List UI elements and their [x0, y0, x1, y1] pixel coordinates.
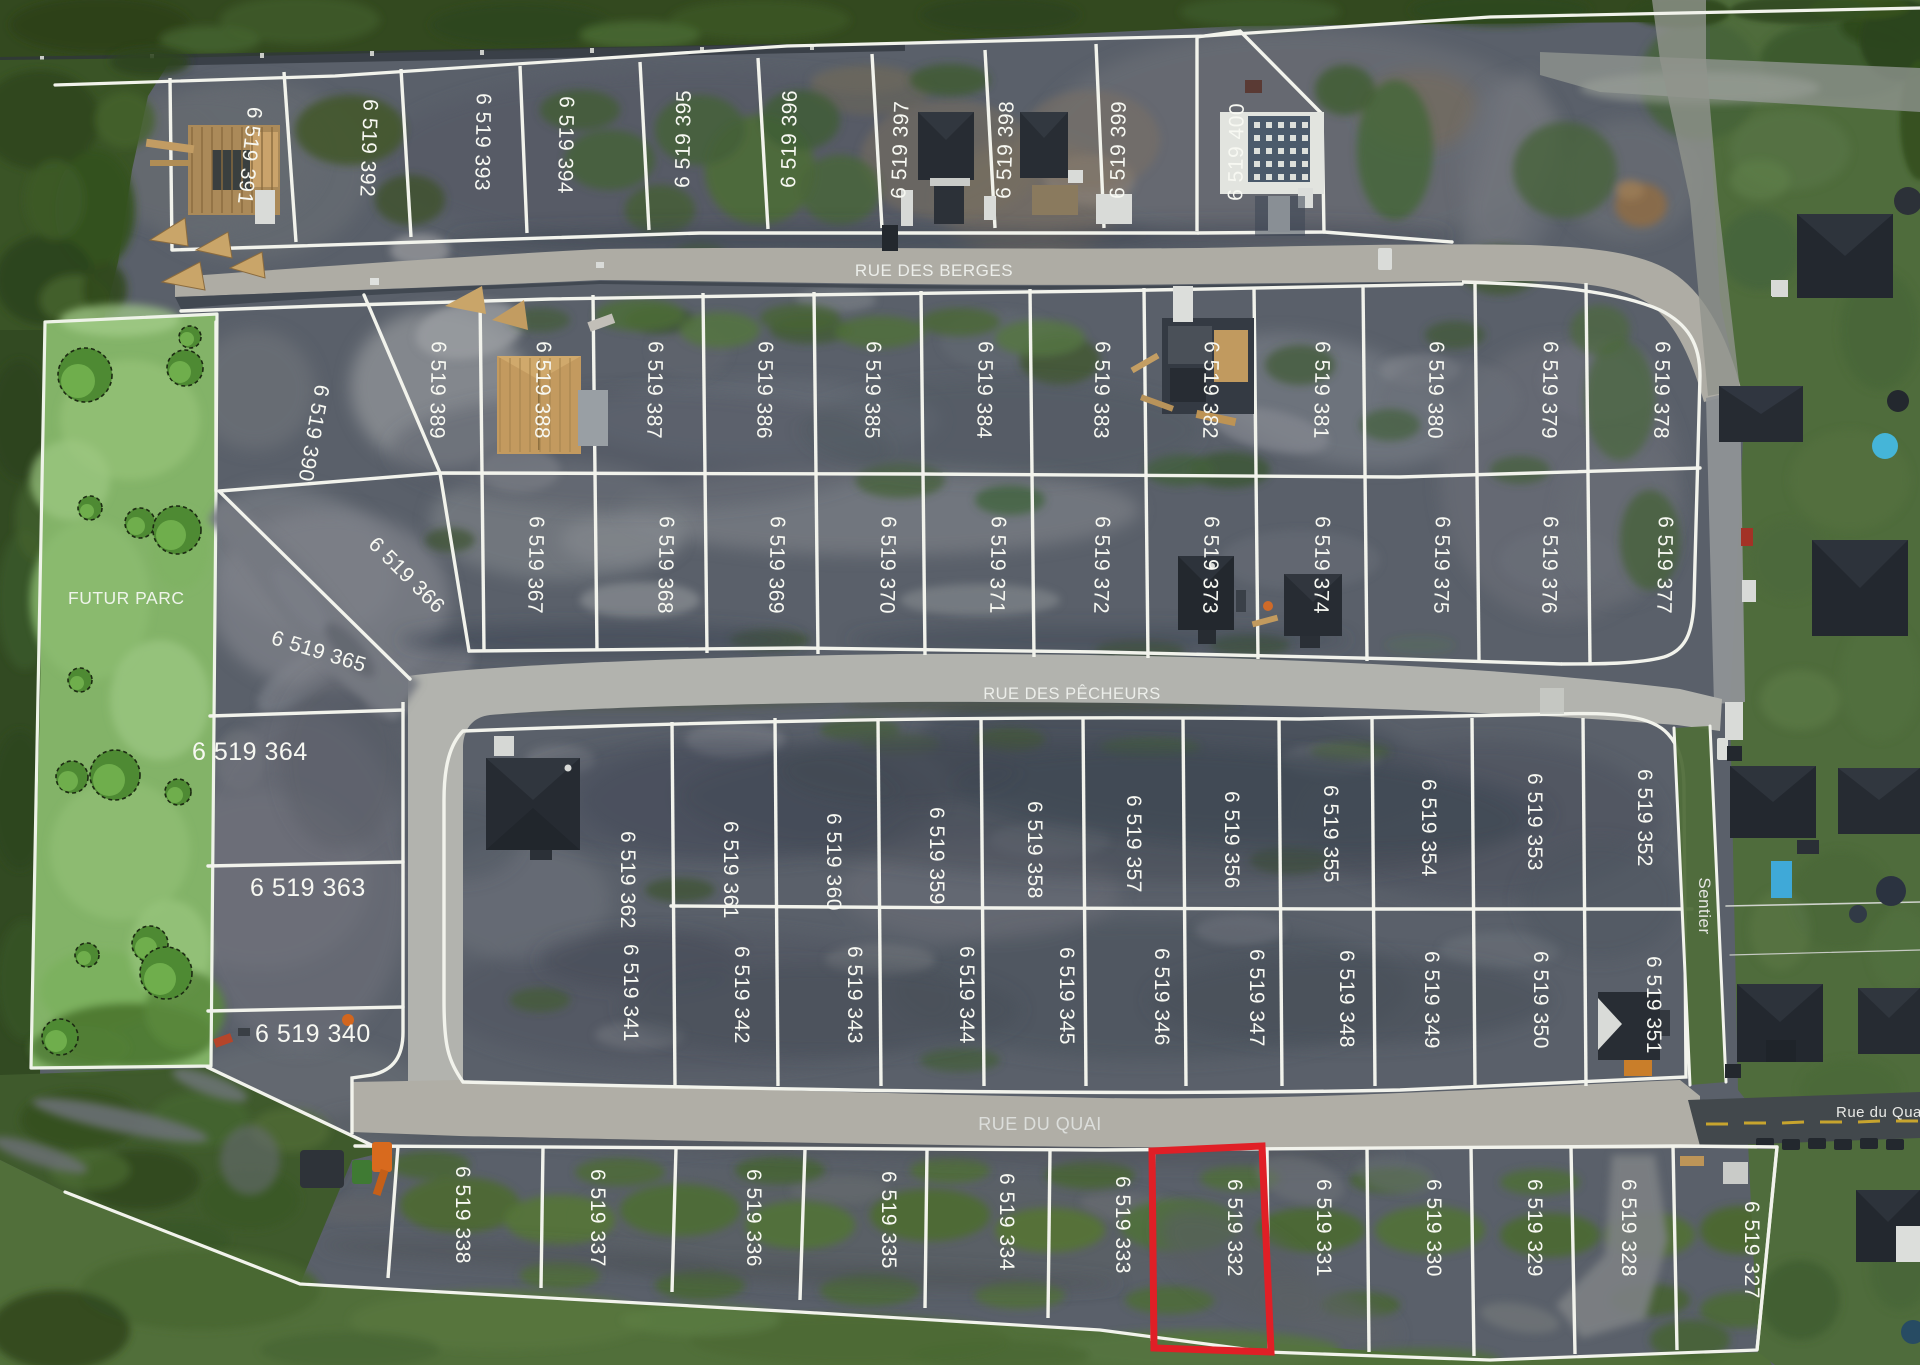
svg-text:6 519 337: 6 519 337	[586, 1169, 609, 1267]
svg-text:6 519 398: 6 519 398	[992, 100, 1018, 199]
svg-text:6 519 374: 6 519 374	[1309, 516, 1334, 614]
svg-text:6 519 372: 6 519 372	[1089, 516, 1114, 614]
svg-text:6 519 394: 6 519 394	[553, 96, 578, 194]
svg-text:6 519 384: 6 519 384	[972, 341, 997, 439]
svg-text:6 519 343: 6 519 343	[843, 946, 866, 1044]
svg-text:6 519 359: 6 519 359	[925, 807, 948, 905]
svg-text:6 519 376: 6 519 376	[1537, 516, 1562, 614]
svg-text:6 519 327: 6 519 327	[1740, 1201, 1763, 1299]
svg-text:6 519 379: 6 519 379	[1537, 341, 1562, 439]
svg-text:6 519 331: 6 519 331	[1312, 1179, 1335, 1277]
svg-text:6 519 328: 6 519 328	[1617, 1179, 1640, 1277]
svg-text:6 519 360: 6 519 360	[822, 813, 845, 911]
svg-text:6 519 349: 6 519 349	[1420, 951, 1443, 1049]
svg-text:RUE DU QUAI: RUE DU QUAI	[978, 1114, 1102, 1134]
svg-text:6 519 346: 6 519 346	[1150, 948, 1173, 1046]
svg-text:6 519 377: 6 519 377	[1652, 516, 1677, 614]
svg-text:6 519 388: 6 519 388	[530, 341, 555, 439]
svg-text:6 519 363: 6 519 363	[250, 874, 366, 902]
svg-text:Sentier: Sentier	[1695, 877, 1714, 934]
svg-text:Rue du Qua: Rue du Qua	[1836, 1104, 1920, 1121]
svg-text:6 519 383: 6 519 383	[1089, 341, 1114, 439]
svg-text:6 519 380: 6 519 380	[1423, 341, 1448, 439]
svg-text:6 519 361: 6 519 361	[719, 821, 742, 919]
svg-text:6 519 354: 6 519 354	[1417, 779, 1440, 877]
svg-text:6 519 333: 6 519 333	[1111, 1176, 1134, 1274]
svg-text:6 519 336: 6 519 336	[742, 1169, 765, 1267]
svg-text:6 519 353: 6 519 353	[1523, 773, 1546, 871]
svg-text:6 519 369: 6 519 369	[764, 516, 789, 614]
svg-text:6 519 373: 6 519 373	[1198, 516, 1223, 614]
svg-text:6 519 367: 6 519 367	[523, 516, 548, 614]
svg-text:6 519 382: 6 519 382	[1198, 341, 1223, 439]
svg-text:6 519 329: 6 519 329	[1523, 1179, 1546, 1277]
svg-text:6 519 356: 6 519 356	[1220, 791, 1243, 889]
svg-text:6 519 370: 6 519 370	[875, 516, 900, 614]
svg-text:FUTUR PARC: FUTUR PARC	[68, 588, 184, 608]
svg-text:6 519 386: 6 519 386	[752, 341, 777, 439]
svg-text:6 519 330: 6 519 330	[1422, 1179, 1445, 1277]
svg-text:6 519 344: 6 519 344	[955, 946, 978, 1044]
svg-text:6 519 393: 6 519 393	[470, 93, 495, 191]
svg-text:6 519 399: 6 519 399	[1106, 101, 1131, 199]
svg-text:6 519 357: 6 519 357	[1122, 795, 1145, 893]
svg-text:6 519 400: 6 519 400	[1224, 103, 1249, 201]
svg-text:6 519 364: 6 519 364	[192, 738, 308, 766]
svg-text:6 519 358: 6 519 358	[1023, 801, 1046, 899]
svg-text:6 519 378: 6 519 378	[1649, 341, 1674, 439]
svg-text:6 519 371: 6 519 371	[985, 516, 1010, 614]
svg-text:6 519 387: 6 519 387	[642, 341, 667, 439]
svg-text:6 519 395: 6 519 395	[671, 90, 696, 188]
svg-text:6 519 351: 6 519 351	[1642, 956, 1665, 1054]
svg-text:6 519 362: 6 519 362	[616, 831, 639, 929]
svg-text:6 519 392: 6 519 392	[355, 99, 381, 198]
svg-text:6 519 340: 6 519 340	[255, 1020, 371, 1048]
svg-text:6 519 375: 6 519 375	[1429, 516, 1454, 614]
svg-text:6 519 334: 6 519 334	[995, 1173, 1018, 1271]
svg-text:6 519 396: 6 519 396	[777, 90, 802, 188]
svg-text:6 519 352: 6 519 352	[1633, 769, 1656, 867]
svg-text:6 519 335: 6 519 335	[877, 1171, 900, 1269]
svg-text:6 519 397: 6 519 397	[887, 100, 913, 199]
svg-text:6 519 345: 6 519 345	[1055, 947, 1078, 1045]
svg-text:6 519 348: 6 519 348	[1335, 950, 1358, 1048]
svg-text:6 519 342: 6 519 342	[730, 946, 753, 1044]
svg-text:6 519 368: 6 519 368	[653, 516, 678, 614]
svg-text:6 519 355: 6 519 355	[1319, 785, 1342, 883]
svg-text:RUE DES BERGES: RUE DES BERGES	[855, 261, 1013, 280]
svg-text:6 519 381: 6 519 381	[1309, 341, 1334, 439]
svg-text:RUE DES PÊCHEURS: RUE DES PÊCHEURS	[983, 684, 1161, 703]
svg-text:6 519 332: 6 519 332	[1223, 1179, 1246, 1277]
svg-text:6 519 350: 6 519 350	[1529, 951, 1552, 1049]
svg-text:6 519 338: 6 519 338	[451, 1166, 474, 1264]
svg-text:6 519 341: 6 519 341	[619, 944, 642, 1042]
svg-text:6 519 347: 6 519 347	[1245, 949, 1268, 1047]
svg-text:6 519 389: 6 519 389	[425, 341, 450, 439]
svg-text:6 519 385: 6 519 385	[860, 341, 885, 439]
